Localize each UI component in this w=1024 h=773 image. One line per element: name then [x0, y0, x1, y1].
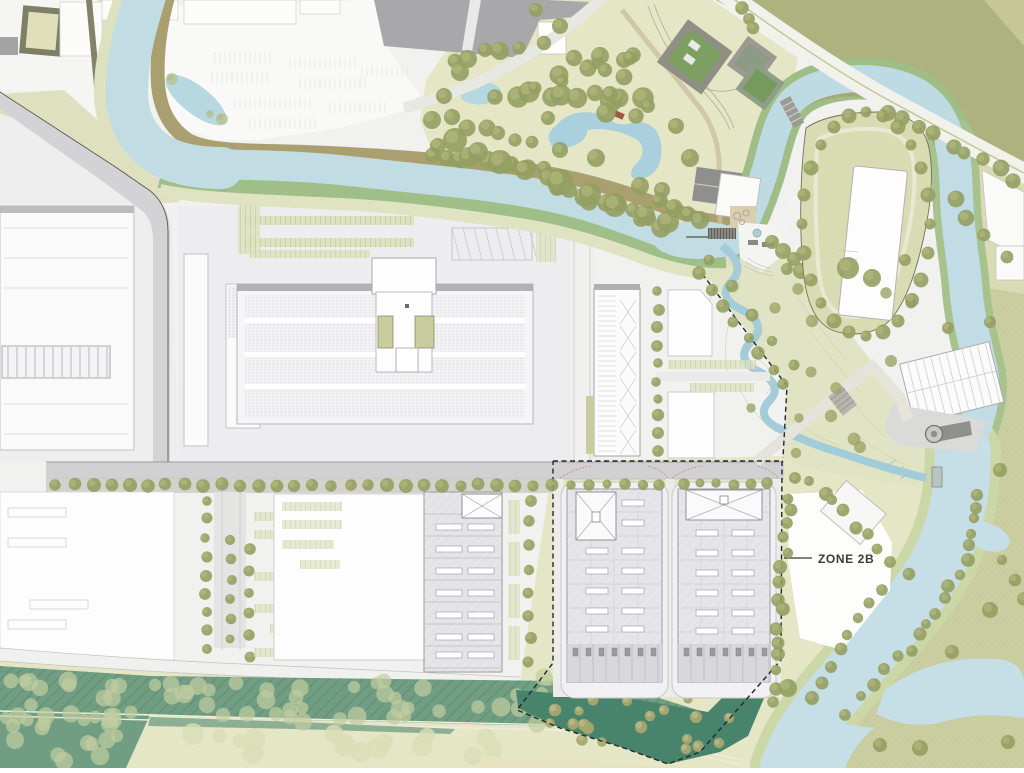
svg-text:ZONE 2B: ZONE 2B: [818, 552, 874, 566]
